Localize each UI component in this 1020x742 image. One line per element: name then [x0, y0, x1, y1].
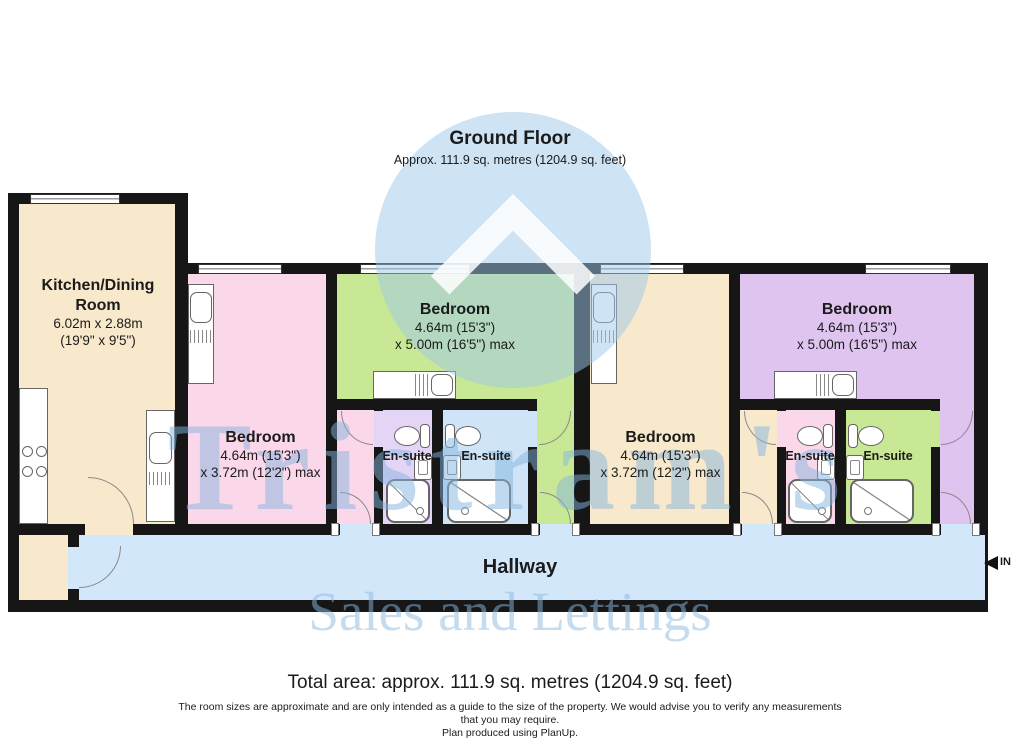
room-name: Bedroom: [762, 300, 952, 320]
window-kitchen: [30, 194, 120, 204]
room-dim-metric: 4.64m (15'3"): [762, 320, 952, 337]
tan-vanity-sink-icon: [593, 292, 615, 323]
basin-inner: [447, 460, 457, 475]
label-bedroom-green: Bedroom 4.64m (15'3") x 5.00m (16'5") ma…: [360, 300, 550, 354]
toilet-icon: [848, 424, 858, 448]
doorway-store: [68, 547, 79, 589]
toilet-icon: [455, 426, 481, 446]
label-ensuite-b: En-suite: [457, 449, 515, 465]
room-dim-imperial: x 5.00m (16'5") max: [360, 337, 550, 354]
disclaimer-line-2: that you may require.: [0, 714, 1020, 726]
page-title: Ground Floor: [0, 128, 1020, 150]
doorway-flat2-tan: [742, 524, 774, 535]
shower-drain-icon: [416, 507, 424, 515]
door-jamb: [774, 523, 782, 536]
toilet-icon: [797, 426, 823, 446]
kitchen-sink-icon: [149, 432, 172, 464]
doorway-flat1-pink: [340, 524, 372, 535]
total-area-text: Total area: approx. 111.9 sq. metres (12…: [0, 672, 1020, 694]
purple-sink-icon: [832, 374, 854, 396]
doorway-ensuite-b: [528, 411, 537, 447]
shower-drain-icon: [864, 507, 872, 515]
room-dim-metric: 4.64m (15'3"): [578, 448, 743, 465]
plan-title-block: Ground Floor Approx. 111.9 sq. metres (1…: [0, 128, 1020, 167]
room-dim-metric: 4.64m (15'3"): [178, 448, 343, 465]
label-hallway: Hallway: [420, 555, 620, 580]
doorway-ensuite-a: [374, 411, 383, 447]
door-jamb: [733, 523, 741, 536]
toilet-icon: [823, 424, 833, 448]
label-ensuite-a: En-suite: [378, 449, 436, 465]
hob-ring-icon: [22, 466, 33, 477]
hob-ring-icon: [22, 446, 33, 457]
room-dim-imperial: x 3.72m (12'2") max: [578, 465, 743, 482]
toilet-icon: [420, 424, 430, 448]
doorway-flat2-purple: [941, 524, 972, 535]
room-name: Bedroom: [178, 428, 343, 448]
label-kitchen: Kitchen/Dining Room 6.02m x 2.88m (19'9"…: [22, 276, 174, 350]
doorway-kitchen: [85, 524, 133, 535]
room-dim-imperial: x 3.72m (12'2") max: [178, 465, 343, 482]
toilet-icon: [445, 424, 455, 448]
door-jamb: [531, 523, 539, 536]
shower-icon: [386, 479, 430, 523]
room-name: Bedroom: [360, 300, 550, 320]
window-bedroom-tan: [600, 264, 684, 274]
green-sink-icon: [431, 374, 453, 396]
pink-vanity-drainer-icon: [190, 330, 212, 343]
room-dim-metric: 6.02m x 2.88m: [22, 316, 174, 333]
hob-ring-icon: [36, 446, 47, 457]
door-jamb: [972, 523, 980, 536]
doorway-flat1-green: [540, 524, 572, 535]
pink-vanity-sink-icon: [190, 292, 212, 323]
door-jamb: [372, 523, 380, 536]
kitchen-drainer-icon: [149, 472, 172, 485]
door-jamb: [331, 523, 339, 536]
doorway-ensuite-c: [777, 411, 786, 447]
kitchen-sink-counter-icon: [146, 410, 175, 522]
room-name: Bedroom: [578, 428, 743, 448]
room-name: Kitchen/Dining Room: [22, 276, 174, 316]
shower-drain-icon: [461, 507, 469, 515]
shower-icon: [850, 479, 914, 523]
hob-ring-icon: [36, 466, 47, 477]
label-ensuite-c: En-suite: [781, 449, 839, 465]
shower-icon: [788, 479, 832, 523]
window-bedroom-purple: [865, 264, 951, 274]
toilet-icon: [858, 426, 884, 446]
room-store: [19, 535, 68, 600]
room-dim-imperial: (19'9" x 9'5"): [22, 333, 174, 350]
purple-drainer-icon: [816, 374, 829, 396]
door-jamb: [572, 523, 580, 536]
room-dim-imperial: x 5.00m (16'5") max: [762, 337, 952, 354]
shower-drain-icon: [818, 507, 826, 515]
label-bedroom-tan: Bedroom 4.64m (15'3") x 3.72m (12'2") ma…: [578, 428, 743, 482]
label-bedroom-purple: Bedroom 4.64m (15'3") x 5.00m (16'5") ma…: [762, 300, 952, 354]
page-subtitle: Approx. 111.9 sq. metres (1204.9 sq. fee…: [0, 153, 1020, 167]
window-bedroom-pink: [198, 264, 282, 274]
disclaimer-line-1: The room sizes are approximate and are o…: [0, 701, 1020, 713]
label-bedroom-pink: Bedroom 4.64m (15'3") x 3.72m (12'2") ma…: [178, 428, 343, 482]
toilet-icon: [394, 426, 420, 446]
label-ensuite-d: En-suite: [859, 449, 917, 465]
doorway-ensuite-d: [931, 411, 940, 447]
window-bedroom-green: [360, 264, 470, 274]
green-drainer-icon: [415, 374, 428, 396]
disclaimer-line-3: Plan produced using PlanUp.: [0, 727, 1020, 739]
shower-icon: [447, 479, 511, 523]
entry-arrow-icon: [984, 556, 998, 570]
entry-label: IN: [1000, 556, 1011, 568]
tan-vanity-drainer-icon: [593, 330, 615, 343]
door-jamb: [932, 523, 940, 536]
floorplan-page: Ground Floor Approx. 111.9 sq. metres (1…: [0, 0, 1020, 742]
room-dim-metric: 4.64m (15'3"): [360, 320, 550, 337]
